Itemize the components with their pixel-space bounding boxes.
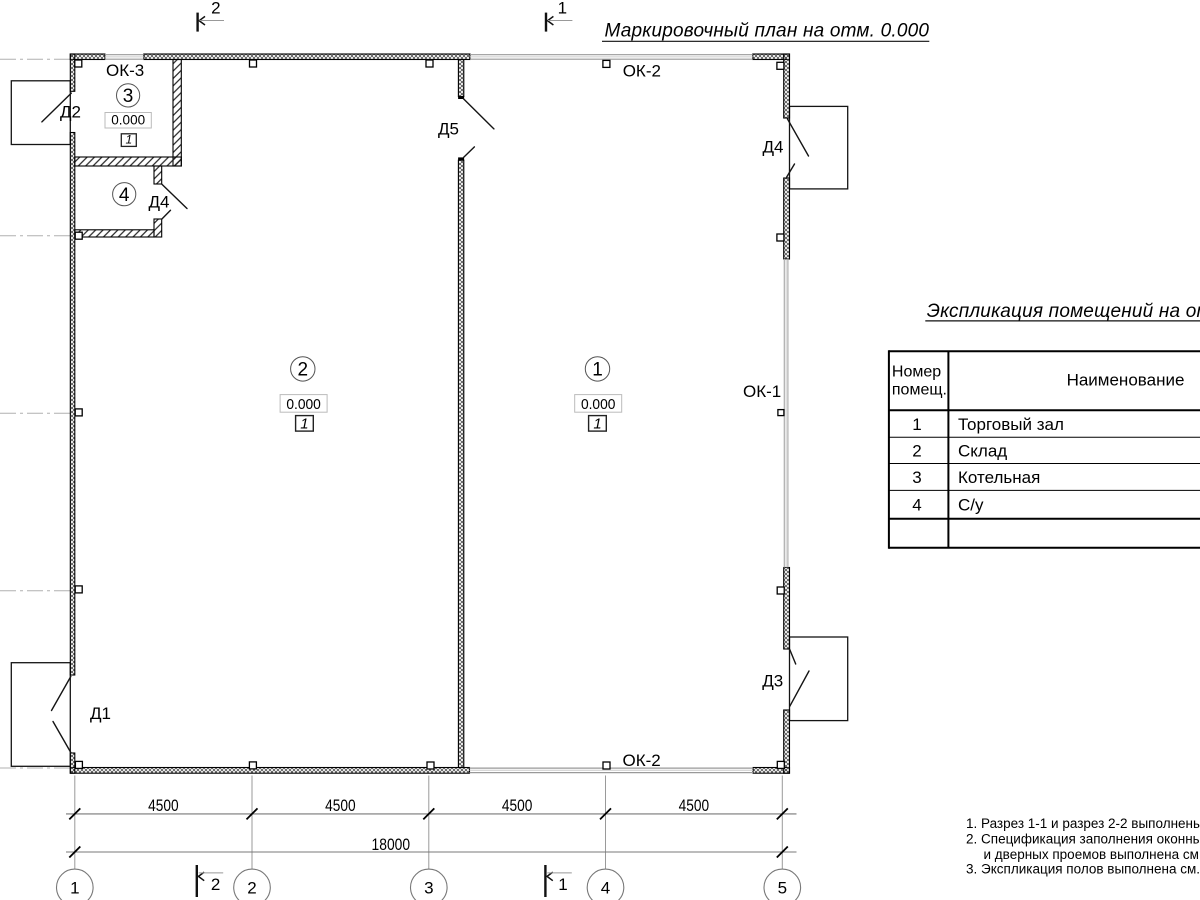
svg-text:Экспликация помещений на отм.: Экспликация помещений на отм. 0.000 bbox=[927, 301, 1200, 322]
svg-text:1: 1 bbox=[558, 0, 567, 17]
svg-text:1: 1 bbox=[593, 416, 601, 433]
svg-text:3. Экспликация полов выполнена: 3. Экспликация полов выполнена см. лист bbox=[966, 862, 1200, 877]
svg-text:Склад: Склад bbox=[958, 441, 1007, 460]
svg-text:Наименование: Наименование bbox=[1067, 371, 1185, 390]
svg-text:Маркировочный план на отм. 0.0: Маркировочный план на отм. 0.000 bbox=[605, 21, 930, 42]
svg-text:4: 4 bbox=[119, 185, 130, 206]
svg-text:1: 1 bbox=[70, 878, 79, 897]
svg-text:и дверных проемов выполнена см: и дверных проемов выполнена см. лист bbox=[984, 847, 1200, 862]
svg-text:4500: 4500 bbox=[148, 796, 179, 815]
svg-text:5: 5 bbox=[778, 878, 787, 897]
svg-text:4500: 4500 bbox=[502, 796, 533, 815]
svg-text:1: 1 bbox=[125, 133, 132, 147]
svg-text:2: 2 bbox=[211, 0, 220, 17]
svg-text:ОК-2: ОК-2 bbox=[623, 751, 661, 770]
svg-text:1: 1 bbox=[300, 416, 308, 433]
svg-text:ОК-1: ОК-1 bbox=[743, 382, 781, 401]
svg-text:2. Спецификация заполнения око: 2. Спецификация заполнения оконных bbox=[966, 831, 1200, 846]
svg-text:2: 2 bbox=[211, 875, 220, 894]
svg-text:18000: 18000 bbox=[372, 835, 411, 854]
svg-text:1: 1 bbox=[592, 360, 603, 381]
svg-text:0.000: 0.000 bbox=[111, 113, 145, 128]
svg-text:0.000: 0.000 bbox=[286, 396, 321, 413]
svg-text:1: 1 bbox=[912, 415, 921, 434]
svg-text:3: 3 bbox=[424, 878, 433, 897]
svg-text:ОК-3: ОК-3 bbox=[106, 61, 144, 80]
svg-text:2: 2 bbox=[298, 360, 309, 381]
svg-text:2: 2 bbox=[912, 441, 921, 460]
svg-text:Д3: Д3 bbox=[762, 672, 783, 691]
svg-text:Д4: Д4 bbox=[149, 192, 170, 211]
svg-text:С/у: С/у bbox=[958, 496, 984, 515]
svg-text:Д1: Д1 bbox=[90, 704, 111, 723]
svg-text:Номер: Номер bbox=[892, 364, 941, 381]
svg-text:4500: 4500 bbox=[679, 796, 710, 815]
svg-text:2: 2 bbox=[247, 878, 256, 897]
svg-text:помещ.: помещ. bbox=[892, 381, 947, 398]
svg-text:Д4: Д4 bbox=[763, 138, 784, 157]
svg-text:Торговый зал: Торговый зал bbox=[958, 415, 1064, 434]
svg-text:1: 1 bbox=[558, 875, 567, 894]
svg-text:Д5: Д5 bbox=[438, 119, 459, 138]
svg-text:Д2: Д2 bbox=[60, 103, 81, 122]
svg-text:Котельная: Котельная bbox=[958, 468, 1040, 487]
svg-text:4500: 4500 bbox=[325, 796, 356, 815]
svg-text:4: 4 bbox=[912, 496, 921, 515]
svg-text:0.000: 0.000 bbox=[581, 396, 616, 413]
svg-text:4: 4 bbox=[601, 878, 610, 897]
svg-text:3: 3 bbox=[123, 86, 134, 107]
svg-text:3: 3 bbox=[912, 468, 921, 487]
svg-text:ОК-2: ОК-2 bbox=[623, 62, 661, 81]
svg-text:1. Разрез 1-1 и разрез 2-2 вып: 1. Разрез 1-1 и разрез 2-2 выполнены см.… bbox=[966, 816, 1200, 831]
